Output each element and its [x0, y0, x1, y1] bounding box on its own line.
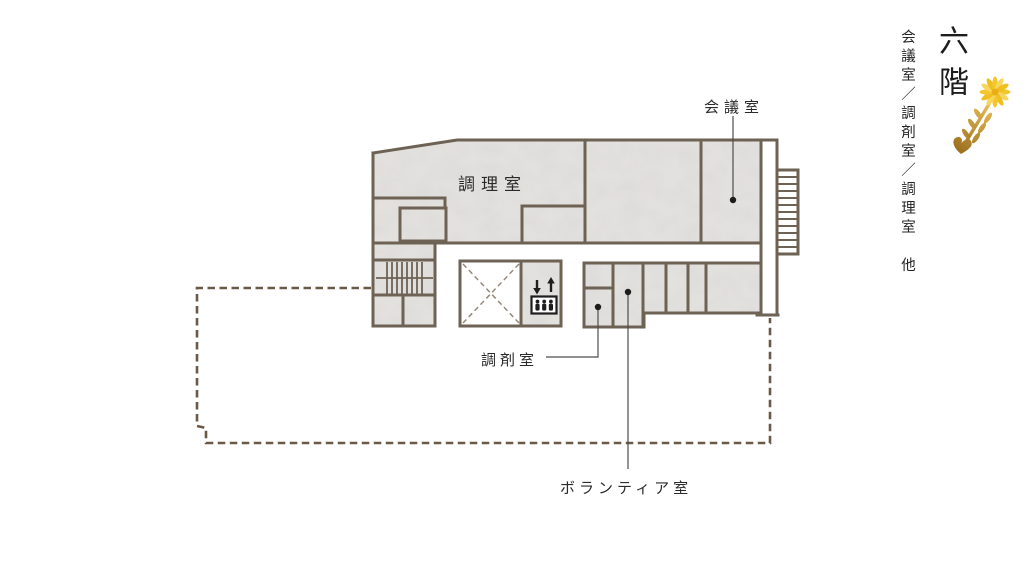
floor-title: 六階: [928, 25, 972, 107]
label-volunteer-room: ボランティア室: [560, 477, 692, 498]
floor-guide-page: 調理室 会議室 調剤室 ボランティア室 六階 会議室／調剤室／調理室 他: [0, 0, 1024, 569]
label-dispensing-room: 調剤室: [481, 349, 538, 370]
void-x-icon: [463, 264, 519, 323]
label-cooking-room: 調理室: [458, 170, 527, 195]
floorplan-drawing: [0, 0, 1024, 569]
exterior-staircase-icon: [777, 177, 798, 247]
label-meeting-room: 会議室: [704, 96, 764, 117]
floor-subtitle: 会議室／調剤室／調理室 他: [897, 29, 918, 276]
